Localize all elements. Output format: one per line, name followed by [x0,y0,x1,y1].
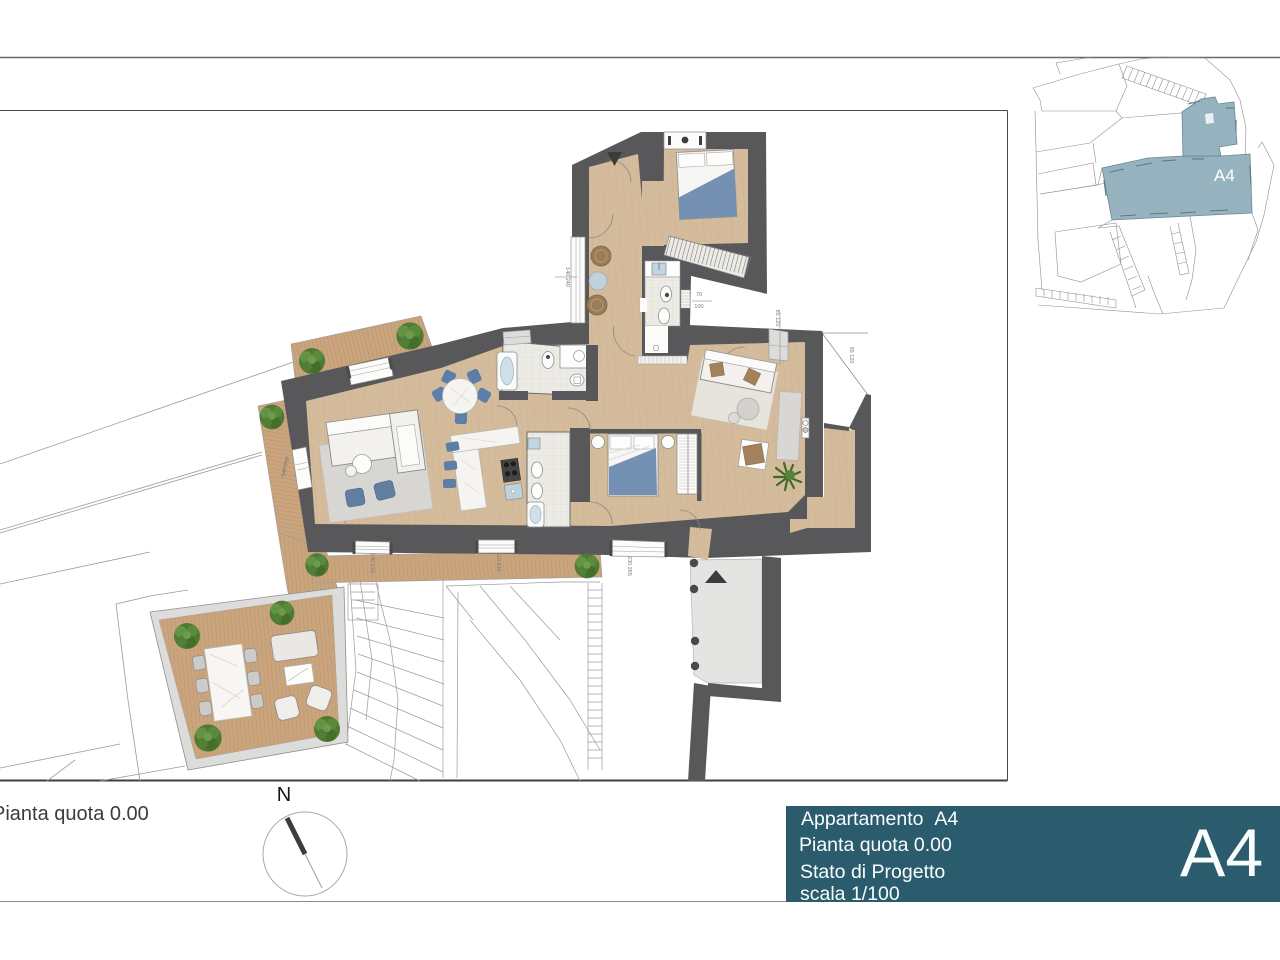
svg-text:Pianta quota 0.00: Pianta quota 0.00 [0,803,149,825]
svg-text:110 210: 110 210 [495,552,501,571]
svg-text:100: 100 [694,304,703,310]
svg-text:70: 70 [696,292,702,298]
svg-text:140 210: 140 210 [369,553,375,573]
svg-text:N: N [277,784,291,806]
svg-text:95 120: 95 120 [848,347,854,364]
svg-text:230 265: 230 265 [626,556,632,576]
svg-text:Appartamento A4: Appartamento A4 [801,808,958,830]
svg-text:scala 1/100: scala 1/100 [800,883,900,905]
svg-text:A4: A4 [1180,815,1263,891]
svg-text:85 120: 85 120 [774,310,780,327]
svg-text:A4: A4 [1214,166,1235,185]
svg-text:Stato di Progetto: Stato di Progetto [800,861,945,883]
svg-text:Pianta quota 0.00: Pianta quota 0.00 [799,834,952,856]
